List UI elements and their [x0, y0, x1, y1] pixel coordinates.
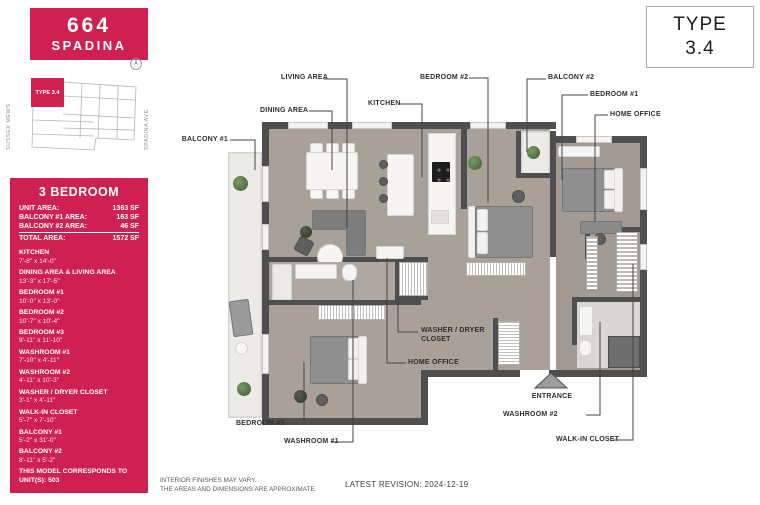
dining-chair — [326, 189, 339, 199]
revision-date: LATEST REVISION: 2024-12-19 — [345, 480, 468, 489]
plant-icon — [468, 156, 482, 170]
window — [262, 224, 269, 250]
bathtub — [272, 264, 292, 300]
dining-chair — [342, 189, 355, 199]
kitchen-sink — [431, 210, 449, 224]
wall — [461, 129, 467, 209]
balcony-door — [262, 334, 269, 374]
entrance-arrow-icon — [530, 371, 572, 391]
stool — [379, 194, 388, 203]
closet-shelving — [616, 232, 638, 292]
toilet — [342, 264, 357, 281]
floor-plan: BALCONY #1 DINING AREA LIVING AREA KITCH… — [0, 0, 760, 505]
label-dining: DINING AREA — [260, 107, 308, 114]
label-kitchen: KITCHEN — [368, 100, 401, 107]
closet-shelving — [586, 236, 598, 290]
wall — [421, 370, 520, 377]
cooktop — [432, 162, 450, 182]
label-washroom1: WASHROOM #1 — [284, 438, 339, 445]
wall — [516, 173, 555, 178]
toilet — [579, 340, 592, 356]
plant-icon — [527, 146, 540, 159]
label-bedroom3: BEDROOM #3 — [236, 420, 284, 427]
entry-closet — [498, 321, 520, 365]
label-entrance: ENTRANCE — [523, 393, 581, 400]
label-balcony2: BALCONY #2 — [548, 74, 594, 81]
dining-chair — [310, 189, 323, 199]
chair — [512, 190, 525, 203]
bedroom2-closet — [466, 262, 526, 276]
side-table — [235, 342, 248, 355]
label-washroom2: WASHROOM #2 — [503, 411, 558, 418]
label-balcony1: BALCONY #1 — [178, 136, 228, 143]
bed-headboard — [614, 168, 623, 212]
wall — [550, 131, 556, 257]
pillow — [604, 170, 615, 189]
dining-chair — [326, 143, 339, 153]
vanity — [579, 306, 593, 336]
label-bedroom2: BEDROOM #2 — [420, 74, 468, 81]
label-home-office-top: HOME OFFICE — [610, 111, 661, 118]
disclaimer: INTERIOR FINISHES MAY VARY. THE AREAS AN… — [160, 477, 317, 494]
window — [352, 122, 392, 129]
label-washer-dryer-2: CLOSET — [421, 336, 451, 343]
label-washer-dryer-1: WASHER / DRYER — [421, 327, 485, 334]
kitchen-island — [387, 154, 414, 216]
wall — [262, 418, 428, 425]
dining-table — [306, 152, 358, 190]
label-home-office-bottom: HOME OFFICE — [408, 359, 459, 366]
disclaimer-line1: INTERIOR FINISHES MAY VARY. — [160, 477, 317, 486]
vanity — [295, 264, 337, 279]
pillow — [477, 209, 488, 231]
balcony-1 — [228, 152, 262, 418]
window — [640, 168, 647, 210]
dining-chair — [342, 143, 355, 153]
pillow — [348, 338, 359, 359]
pillow — [604, 190, 615, 209]
window — [640, 244, 647, 270]
plant-icon — [300, 226, 312, 238]
plant-icon — [294, 390, 307, 403]
wall — [516, 131, 521, 178]
label-walk-in-closet: WALK-IN CLOSET — [556, 436, 619, 443]
label-bedroom1: BEDROOM #1 — [590, 91, 638, 98]
label-living: LIVING AREA — [281, 74, 328, 81]
window — [288, 122, 328, 129]
wardrobe — [558, 146, 600, 157]
disclaimer-line2: THE AREAS AND DIMENSIONS ARE APPROXIMATE… — [160, 486, 317, 495]
pouf — [316, 394, 328, 406]
pillow — [477, 232, 488, 254]
pillow — [348, 359, 359, 380]
sofa-chaise — [346, 210, 366, 256]
plant-icon — [233, 176, 248, 191]
washer-dryer-closet — [399, 262, 428, 296]
bedroom3-closet — [318, 305, 386, 320]
wall — [421, 370, 428, 425]
home-office-nook-desk — [376, 246, 404, 259]
window — [576, 136, 612, 143]
shower — [608, 336, 640, 368]
stool — [379, 160, 388, 169]
floorplan-sheet: { "colors": { "accent": "#CF2151", "wall… — [0, 0, 760, 505]
plant-icon — [237, 382, 251, 396]
dining-chair — [310, 143, 323, 153]
balcony-door — [262, 166, 269, 202]
stool — [379, 177, 388, 186]
bed-headboard — [358, 336, 367, 384]
window — [470, 122, 506, 129]
